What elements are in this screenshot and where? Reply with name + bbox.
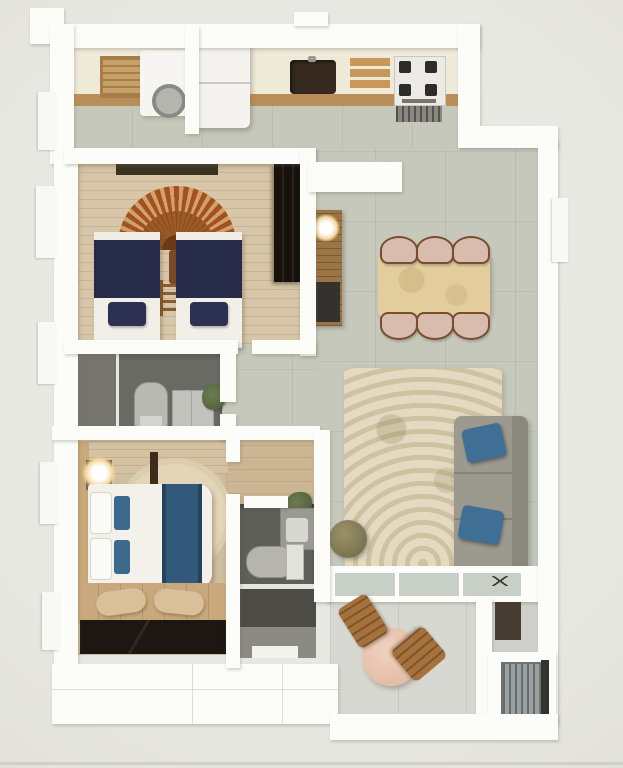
- toilet-base: [140, 416, 162, 426]
- bed-headboard: [176, 232, 242, 240]
- twin-bed-left: [94, 232, 160, 348]
- pilaster: [36, 186, 56, 258]
- white-pillow: [90, 538, 112, 580]
- navy-pillow: [190, 302, 228, 326]
- bedroom1-top-wall: [64, 148, 316, 164]
- dining-chair: [416, 236, 454, 264]
- faucet: [308, 56, 316, 62]
- blue-bed-runner: [162, 484, 202, 588]
- kitchen-sink: [290, 60, 336, 94]
- floor-plan-render: [0, 0, 623, 768]
- dining-chair: [380, 236, 418, 264]
- master-top-wall: [52, 426, 320, 440]
- dark-dresser: [80, 620, 228, 654]
- twin-bed-right: [176, 232, 242, 348]
- bedroom1-bottom-wall: [252, 340, 316, 354]
- pilaster: [42, 592, 60, 650]
- sink-basin: [286, 518, 308, 542]
- stove-knobs: [402, 99, 436, 103]
- wall-bump: [294, 12, 328, 26]
- bed-post: [150, 452, 158, 486]
- shower-divider: [116, 352, 119, 430]
- shower-section: [238, 589, 316, 627]
- navy-pillow: [108, 302, 146, 326]
- glass-panel: [334, 572, 396, 597]
- dining-table: [378, 256, 490, 316]
- sofa-pillow: [457, 505, 504, 546]
- stove-burner: [425, 61, 437, 73]
- master-right-wall: [226, 440, 240, 462]
- master-right-wall: [226, 494, 240, 668]
- pilaster: [38, 322, 56, 384]
- washer-door: [152, 84, 186, 118]
- living-left-wall: [314, 430, 330, 602]
- window-bump: [552, 198, 568, 262]
- dining-chair: [380, 312, 418, 340]
- white-pillow: [90, 492, 112, 534]
- kitchen-partition: [185, 26, 199, 134]
- double-bed: [88, 484, 212, 588]
- pilaster: [38, 92, 56, 150]
- shelf-items: [312, 282, 340, 322]
- bedroom1-bottom-wall: [64, 340, 238, 354]
- bed-headboard: [94, 232, 160, 240]
- toilet-bowl: [246, 546, 288, 578]
- toilet-tank: [286, 544, 304, 580]
- blue-cushion: [114, 496, 130, 530]
- dining-chair: [452, 312, 490, 340]
- bathroom1-right-wall: [220, 352, 236, 402]
- outer-wall-bottom-right: [330, 714, 558, 740]
- navy-duvet: [176, 240, 242, 298]
- glass-panel: [398, 572, 460, 597]
- door-threshold: [252, 646, 298, 658]
- shelf-lamp-glow: [312, 214, 340, 242]
- dark-wardrobe: [274, 164, 302, 282]
- ac-dark-slat: [541, 660, 549, 718]
- utility-doorway: [495, 602, 521, 640]
- pouf: [329, 520, 367, 558]
- dining-chair: [416, 312, 454, 340]
- bathroom2-door-threshold: [244, 496, 288, 508]
- cutting-tray: [100, 56, 144, 98]
- stove-burner: [399, 61, 411, 73]
- air-conditioner-icon: [501, 662, 541, 718]
- blue-cushion: [114, 540, 130, 574]
- door-handle: [492, 576, 508, 586]
- dining-chair: [452, 236, 490, 264]
- stove-burner: [399, 84, 411, 96]
- pilaster: [40, 462, 58, 524]
- cutting-boards: [350, 58, 390, 88]
- console-half-wall: [308, 162, 402, 192]
- navy-duvet: [94, 240, 160, 298]
- refrigerator: [194, 36, 250, 128]
- oven-vent: [396, 106, 442, 122]
- outer-wall-top: [50, 24, 480, 48]
- outer-wall-bottom-left: [52, 664, 338, 724]
- shower-area: [76, 352, 116, 430]
- stove-burner: [425, 84, 437, 96]
